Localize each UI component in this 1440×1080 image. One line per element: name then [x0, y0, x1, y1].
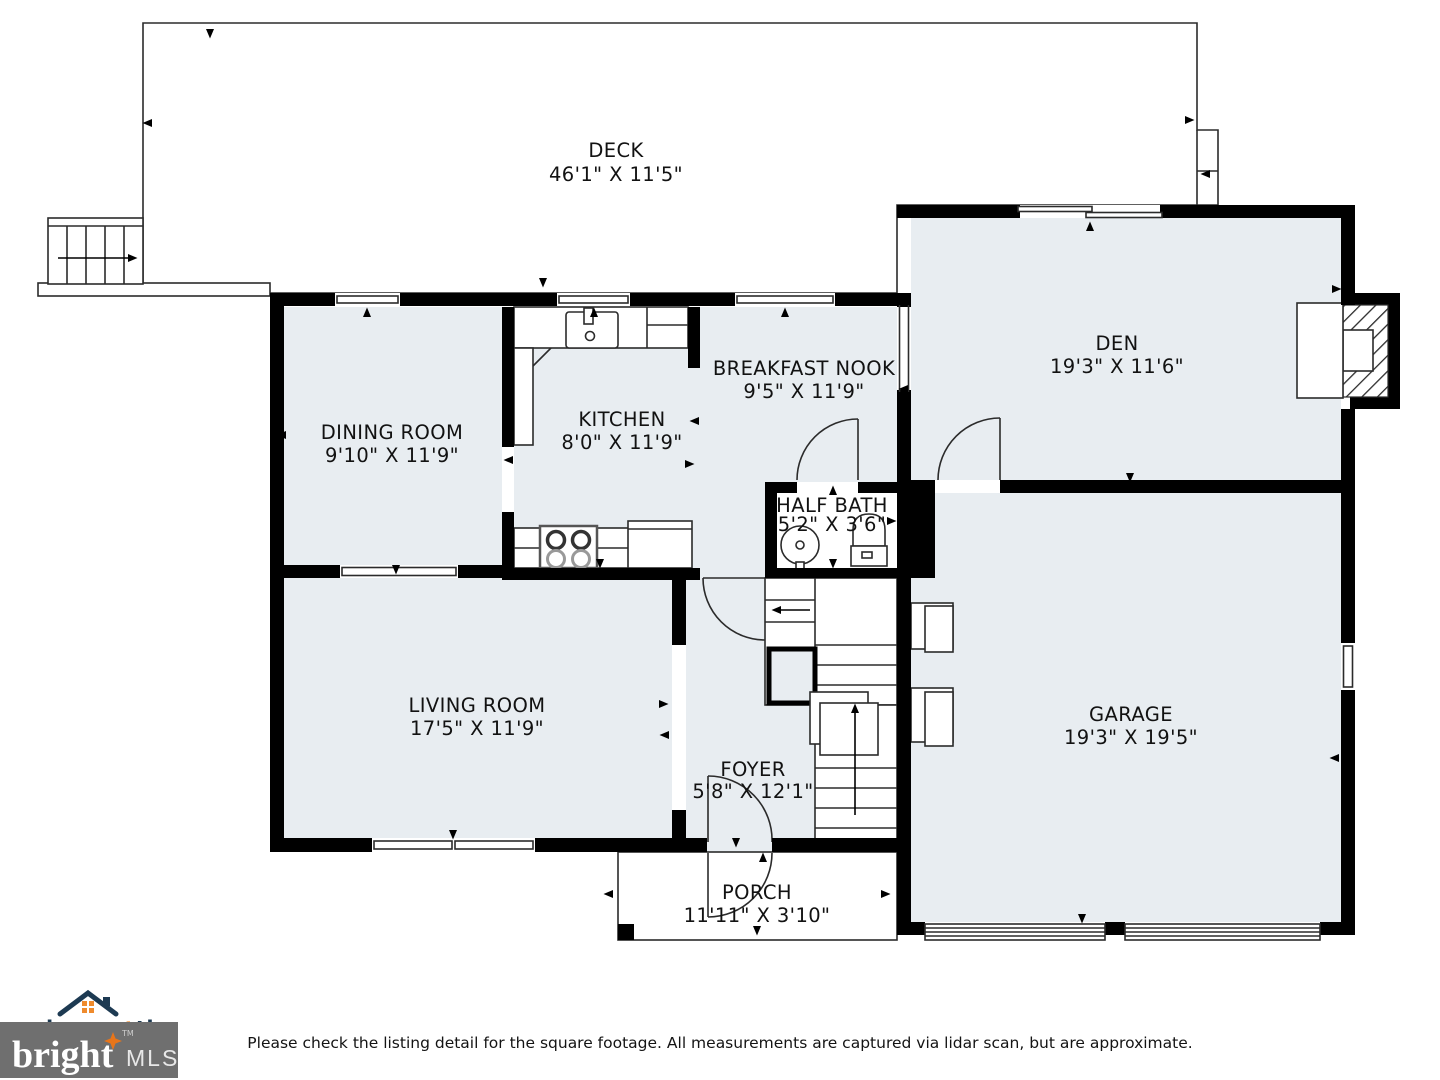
cased-opening [897, 305, 911, 392]
den-label: DEN [1095, 332, 1138, 355]
fridge-icon [628, 521, 692, 568]
disclaimer-text: Please check the listing detail for the … [247, 1034, 1192, 1052]
sliding-door [1018, 205, 1162, 218]
garage-dims: 19'3" X 19'5" [1064, 726, 1198, 749]
floor-plan-page: DECK 46'1" X 11'5" DEN 19'3" X 11'6" DIN… [0, 0, 1440, 1080]
dining-label: DINING ROOM [321, 421, 463, 444]
kitchen-label: KITCHEN [578, 408, 665, 431]
deck-label: DECK [588, 139, 644, 162]
deck-stairs [48, 218, 143, 284]
living-label: LIVING ROOM [408, 694, 545, 717]
foyer-dims: 5'8" X 12'1" [692, 780, 813, 803]
kitchen-dims: 8'0" X 11'9" [561, 431, 682, 454]
window [372, 838, 535, 852]
stairs-up [810, 692, 897, 845]
den-dims: 19'3" X 11'6" [1050, 355, 1184, 378]
window [1341, 643, 1355, 690]
bright-wordmark: bright [12, 1034, 114, 1076]
porch-dims: 11'11" X 3'10" [684, 904, 831, 927]
porch-label: PORCH [722, 881, 792, 904]
foyer-label: FOYER [720, 758, 785, 781]
dining-dims: 9'10" X 11'9" [325, 444, 459, 467]
fireplace-icon [1297, 293, 1400, 409]
footer: hommati .com bright TM MLS Please check … [0, 993, 1193, 1078]
closet [769, 649, 815, 703]
garage-label: GARAGE [1089, 703, 1173, 726]
breakfast-dims: 9'5" X 11'9" [743, 380, 864, 403]
halfbath-dims: 5'2" X 3'6" [778, 513, 886, 536]
living-dims: 17'5" X 11'9" [410, 717, 544, 740]
mls-wordmark: MLS [126, 1045, 179, 1071]
breakfast-label: BREAKFAST NOOK [713, 357, 896, 380]
stove-icon [540, 526, 597, 568]
bright-tm: TM [121, 1029, 134, 1038]
deck-dims: 46'1" X 11'5" [549, 163, 683, 186]
bright-mls-logo: bright TM MLS [0, 1022, 179, 1078]
